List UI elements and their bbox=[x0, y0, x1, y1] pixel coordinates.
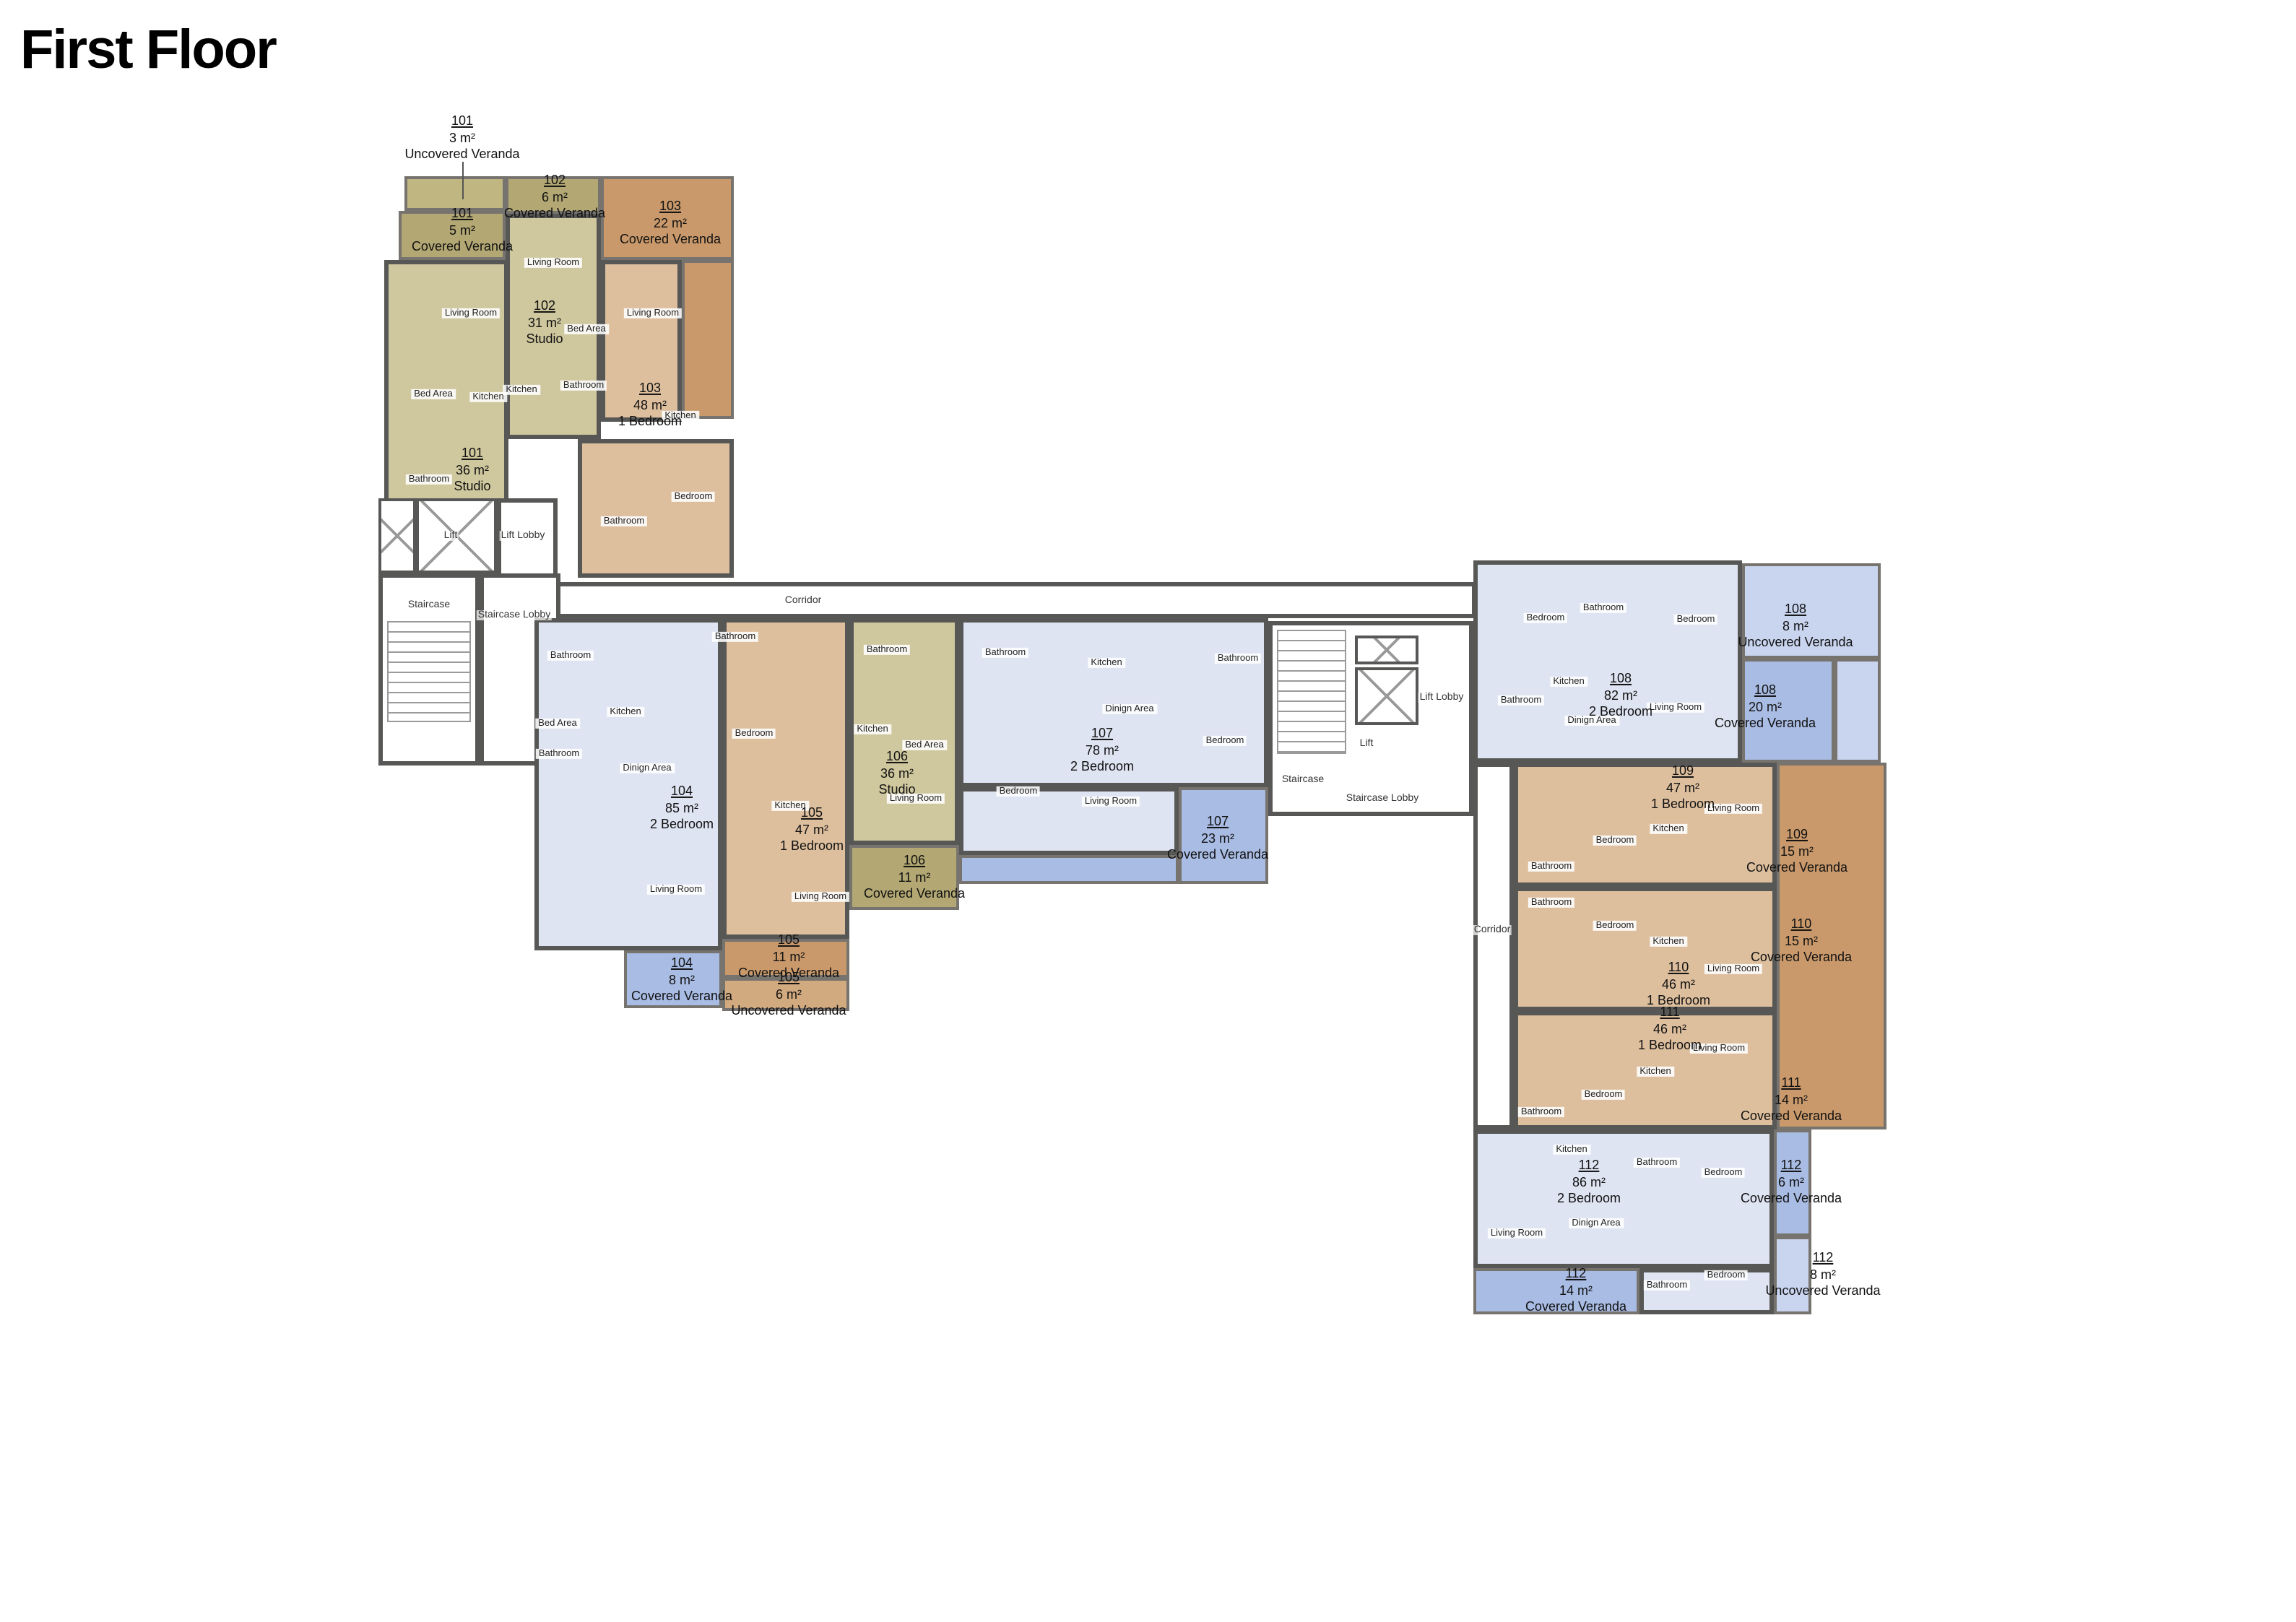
unit-type: 2 Bedroom bbox=[1589, 705, 1652, 721]
unit-103-interior-lower bbox=[578, 439, 734, 578]
room-label-bathroom: Bathroom bbox=[560, 381, 607, 391]
unit-number: 111 bbox=[1638, 1005, 1702, 1021]
unit-area: 86 m² bbox=[1557, 1174, 1621, 1191]
unit-area: 6 m² bbox=[1741, 1174, 1842, 1191]
unit-type: Uncovered Veranda bbox=[1765, 1284, 1880, 1301]
room-label-bathroom: Bathroom bbox=[712, 632, 758, 642]
unit-101-cv-label: 101 5 m² Covered Veranda bbox=[412, 206, 513, 256]
unit-number: 108 bbox=[1738, 602, 1853, 618]
room-label-bathroom: Bathroom bbox=[1580, 603, 1626, 613]
unit-number: 107 bbox=[1167, 814, 1268, 830]
staircase-lobby-label: Staircase Lobby bbox=[1345, 794, 1420, 804]
unit-type: Uncovered Veranda bbox=[404, 147, 519, 164]
unit-number: 103 bbox=[620, 199, 721, 215]
room-label-bedroom: Bedroom bbox=[672, 492, 716, 502]
unit-number: 102 bbox=[504, 173, 605, 189]
unit-type: Studio bbox=[878, 783, 915, 799]
unit-type: Studio bbox=[526, 332, 563, 349]
unit-number: 106 bbox=[864, 853, 965, 869]
unit-104-label: 104 85 m² 2 Bedroom bbox=[650, 784, 714, 834]
unit-111-label: 111 46 m² 1 Bedroom bbox=[1638, 1005, 1702, 1055]
unit-area: 36 m² bbox=[878, 766, 915, 782]
corridor-horizontal bbox=[556, 582, 1476, 618]
unit-107-label: 107 78 m² 2 Bedroom bbox=[1070, 726, 1134, 776]
unit-type: Covered Veranda bbox=[1167, 848, 1268, 864]
room-label-bedroom: Bedroom bbox=[1674, 615, 1718, 625]
corridor-label: Corridor bbox=[784, 596, 823, 606]
room-label-bed-area: Bed Area bbox=[564, 324, 609, 334]
room-label-living-room: Living Room bbox=[1488, 1228, 1546, 1239]
unit-108-uv-label: 108 8 m² Uncovered Veranda bbox=[1738, 602, 1853, 652]
unit-area: 14 m² bbox=[1741, 1092, 1842, 1109]
room-label-bed-area: Bed Area bbox=[411, 389, 456, 399]
unit-area: 11 m² bbox=[738, 949, 839, 966]
unit-type: Covered Veranda bbox=[1741, 1109, 1842, 1126]
room-label-kitchen: Kitchen bbox=[607, 707, 644, 717]
unit-109-label: 109 47 m² 1 Bedroom bbox=[1651, 763, 1715, 814]
room-label-living-room: Living Room bbox=[624, 308, 682, 318]
room-label-bathroom: Bathroom bbox=[536, 749, 582, 759]
unit-112-cv-south-label: 112 14 m² Covered Veranda bbox=[1525, 1266, 1626, 1317]
unit-area: 6 m² bbox=[504, 189, 605, 206]
unit-108-cv-label: 108 20 m² Covered Veranda bbox=[1715, 682, 1816, 733]
room-label-dining-area: Dinign Area bbox=[620, 763, 674, 773]
unit-number: 107 bbox=[1070, 726, 1134, 742]
unit-107-cv-label: 107 23 m² Covered Veranda bbox=[1167, 814, 1268, 864]
unit-107-veranda-strip bbox=[959, 855, 1179, 884]
room-label-living-room: Living Room bbox=[524, 258, 582, 268]
unit-102-cv-label: 102 6 m² Covered Veranda bbox=[504, 173, 605, 223]
room-label-bathroom: Bathroom bbox=[1518, 1107, 1564, 1117]
unit-area: 23 m² bbox=[1167, 830, 1268, 847]
staircase-pattern bbox=[387, 621, 471, 722]
unit-112-label: 112 86 m² 2 Bedroom bbox=[1557, 1158, 1621, 1208]
unit-number: 112 bbox=[1525, 1266, 1626, 1283]
room-label-bathroom: Bathroom bbox=[601, 516, 647, 526]
room-label-bathroom: Bathroom bbox=[864, 645, 910, 655]
unit-110-cv-label: 110 15 m² Covered Veranda bbox=[1751, 916, 1852, 967]
unit-area: 36 m² bbox=[454, 462, 490, 479]
room-label-bedroom: Bedroom bbox=[732, 729, 776, 739]
unit-number: 101 bbox=[454, 446, 490, 462]
room-label-bedroom: Bedroom bbox=[1593, 836, 1637, 846]
unit-number: 112 bbox=[1557, 1158, 1621, 1174]
unit-area: 47 m² bbox=[780, 822, 844, 838]
room-label-kitchen: Kitchen bbox=[1553, 1145, 1590, 1155]
unit-number: 104 bbox=[631, 955, 732, 972]
unit-area: 8 m² bbox=[1738, 618, 1853, 635]
unit-area: 47 m² bbox=[1651, 780, 1715, 797]
unit-type: Covered Veranda bbox=[864, 887, 965, 903]
room-label-bedroom: Bedroom bbox=[1203, 736, 1247, 746]
unit-type: 2 Bedroom bbox=[1557, 1192, 1621, 1208]
corridor-label: Corridor bbox=[1473, 925, 1512, 935]
unit-area: 85 m² bbox=[650, 800, 714, 817]
unit-type: Covered Veranda bbox=[631, 989, 732, 1006]
unit-area: 14 m² bbox=[1525, 1283, 1626, 1299]
room-label-living-room: Living Room bbox=[647, 885, 705, 895]
room-label-living-room: Living Room bbox=[442, 308, 500, 318]
unit-type: Covered Veranda bbox=[620, 233, 721, 249]
lift-icon bbox=[1355, 667, 1418, 725]
room-label-bathroom: Bathroom bbox=[982, 648, 1028, 658]
room-label-kitchen: Kitchen bbox=[1550, 677, 1587, 687]
unit-type: Covered Veranda bbox=[1715, 716, 1816, 733]
room-label-kitchen: Kitchen bbox=[854, 724, 891, 734]
unit-105-uv-label: 105 6 m² Uncovered Veranda bbox=[731, 970, 846, 1020]
room-label-living-room: Living Room bbox=[1647, 703, 1704, 713]
room-label-dining-area: Dinign Area bbox=[1102, 704, 1156, 714]
room-label-bathroom: Bathroom bbox=[1644, 1280, 1690, 1291]
unit-number: 111 bbox=[1741, 1075, 1842, 1092]
unit-area: 31 m² bbox=[526, 315, 563, 331]
unit-type: Covered Veranda bbox=[1746, 861, 1847, 877]
room-label-bathroom: Bathroom bbox=[1215, 654, 1261, 664]
lift-shaft-icon bbox=[378, 498, 416, 573]
unit-number: 112 bbox=[1765, 1250, 1880, 1267]
unit-type: 1 Bedroom bbox=[1651, 797, 1715, 814]
unit-111-cv-label: 111 14 m² Covered Veranda bbox=[1741, 1075, 1842, 1126]
unit-type: 1 Bedroom bbox=[618, 415, 682, 431]
unit-103-covered-veranda-side bbox=[682, 260, 734, 419]
unit-type: Studio bbox=[454, 480, 490, 496]
room-label-bathroom: Bathroom bbox=[1528, 862, 1574, 872]
unit-area: 8 m² bbox=[1765, 1267, 1880, 1283]
unit-area: 15 m² bbox=[1751, 933, 1852, 950]
unit-102-label: 102 31 m² Studio bbox=[526, 298, 563, 349]
room-label-kitchen: Kitchen bbox=[1650, 937, 1686, 947]
unit-number: 105 bbox=[780, 805, 844, 822]
room-label-kitchen: Kitchen bbox=[503, 385, 540, 395]
room-label-kitchen: Kitchen bbox=[1088, 658, 1125, 668]
room-label-bedroom: Bedroom bbox=[1702, 1168, 1746, 1178]
unit-106-label: 106 36 m² Studio bbox=[878, 749, 915, 799]
room-label-bedroom: Bedroom bbox=[1593, 921, 1637, 931]
unit-area: 8 m² bbox=[631, 972, 732, 989]
unit-area: 22 m² bbox=[620, 215, 721, 232]
lift-lobby-label: Lift Lobby bbox=[1418, 693, 1465, 703]
unit-number: 108 bbox=[1715, 682, 1816, 699]
unit-area: 46 m² bbox=[1647, 976, 1710, 993]
unit-106-cv-label: 106 11 m² Covered Veranda bbox=[864, 853, 965, 903]
unit-103-label: 103 48 m² 1 Bedroom bbox=[618, 381, 682, 431]
unit-number: 108 bbox=[1589, 671, 1652, 688]
room-label-kitchen: Kitchen bbox=[469, 392, 506, 402]
unit-area: 48 m² bbox=[618, 397, 682, 414]
unit-number: 109 bbox=[1746, 827, 1847, 843]
room-label-kitchen: Kitchen bbox=[1650, 824, 1686, 834]
unit-area: 82 m² bbox=[1589, 688, 1652, 704]
room-label-bathroom: Bathroom bbox=[547, 651, 594, 661]
lift-lobby-label: Lift Lobby bbox=[500, 531, 547, 541]
page-title: First Floor bbox=[20, 20, 276, 82]
room-label-bedroom: Bedroom bbox=[1524, 613, 1568, 623]
unit-type: 1 Bedroom bbox=[1638, 1038, 1702, 1055]
corridor-vertical bbox=[1473, 763, 1514, 1129]
unit-type: 2 Bedroom bbox=[1070, 760, 1134, 776]
unit-area: 6 m² bbox=[731, 986, 846, 1003]
unit-107-interior-lower bbox=[959, 787, 1179, 855]
unit-103-cv-label: 103 22 m² Covered Veranda bbox=[620, 199, 721, 249]
room-label-bedroom: Bedroom bbox=[997, 786, 1041, 797]
staircase-lobby-label: Staircase Lobby bbox=[477, 610, 552, 620]
unit-112-uv-label: 112 8 m² Uncovered Veranda bbox=[1765, 1250, 1880, 1301]
unit-type: Covered Veranda bbox=[1751, 950, 1852, 967]
unit-type: 1 Bedroom bbox=[780, 839, 844, 856]
unit-area: 11 m² bbox=[864, 869, 965, 886]
unit-number: 110 bbox=[1751, 916, 1852, 933]
unit-101-uv-label: 101 3 m² Uncovered Veranda bbox=[404, 113, 519, 164]
unit-type: Covered Veranda bbox=[504, 207, 605, 223]
unit-type: Covered Veranda bbox=[1525, 1300, 1626, 1317]
unit-area: 78 m² bbox=[1070, 742, 1134, 759]
unit-108-interior bbox=[1473, 560, 1742, 763]
unit-number: 112 bbox=[1741, 1158, 1842, 1174]
room-label-bathroom: Bathroom bbox=[1634, 1158, 1680, 1168]
unit-number: 104 bbox=[650, 784, 714, 800]
unit-type: Uncovered Veranda bbox=[1738, 636, 1853, 652]
unit-105-interior bbox=[722, 618, 849, 939]
unit-101-label: 101 36 m² Studio bbox=[454, 446, 490, 496]
unit-number: 103 bbox=[618, 381, 682, 397]
room-label-kitchen: Kitchen bbox=[1637, 1067, 1673, 1077]
floor-plan: First Floor 101 3 m² U bbox=[0, 0, 2296, 1622]
unit-area: 20 m² bbox=[1715, 699, 1816, 716]
unit-type: Uncovered Veranda bbox=[731, 1004, 846, 1020]
leader-line bbox=[462, 162, 464, 199]
staircase-label: Staircase bbox=[407, 600, 451, 610]
unit-number: 101 bbox=[404, 113, 519, 130]
room-label-bed-area: Bed Area bbox=[535, 719, 580, 729]
unit-number: 109 bbox=[1651, 763, 1715, 780]
unit-area: 5 m² bbox=[412, 222, 513, 239]
room-label-living-room: Living Room bbox=[792, 892, 849, 902]
unit-number: 105 bbox=[738, 932, 839, 949]
unit-number: 106 bbox=[878, 749, 915, 766]
unit-110-label: 110 46 m² 1 Bedroom bbox=[1647, 960, 1710, 1010]
unit-108-label: 108 82 m² 2 Bedroom bbox=[1589, 671, 1652, 721]
unit-112-interior bbox=[1473, 1129, 1774, 1268]
unit-type: 2 Bedroom bbox=[650, 817, 714, 834]
room-label-bathroom: Bathroom bbox=[406, 474, 452, 485]
unit-type: Covered Veranda bbox=[412, 240, 513, 256]
unit-108-veranda-edge bbox=[1834, 659, 1881, 763]
room-label-bedroom: Bedroom bbox=[1704, 1270, 1749, 1280]
unit-number: 110 bbox=[1647, 960, 1710, 976]
unit-area: 46 m² bbox=[1638, 1021, 1702, 1038]
unit-105-label: 105 47 m² 1 Bedroom bbox=[780, 805, 844, 856]
staircase-label: Staircase bbox=[1281, 775, 1325, 785]
unit-number: 105 bbox=[731, 970, 846, 986]
room-label-bathroom: Bathroom bbox=[1498, 695, 1544, 706]
room-label-living-room: Living Room bbox=[1082, 797, 1140, 807]
unit-type: Covered Veranda bbox=[1741, 1192, 1842, 1208]
unit-112-cv-east-label: 112 6 m² Covered Veranda bbox=[1741, 1158, 1842, 1208]
unit-number: 102 bbox=[526, 298, 563, 315]
staircase-pattern bbox=[1277, 630, 1346, 754]
room-label-bathroom: Bathroom bbox=[1528, 898, 1574, 908]
room-label-dining-area: Dinign Area bbox=[1569, 1218, 1623, 1228]
unit-104-cv-label: 104 8 m² Covered Veranda bbox=[631, 955, 732, 1006]
lift-label: Lift bbox=[443, 531, 459, 541]
lift-label: Lift bbox=[1359, 739, 1375, 749]
unit-area: 15 m² bbox=[1746, 843, 1847, 860]
unit-area: 3 m² bbox=[404, 130, 519, 147]
unit-number: 101 bbox=[412, 206, 513, 222]
room-label-bedroom: Bedroom bbox=[1582, 1090, 1626, 1100]
unit-109-cv-label: 109 15 m² Covered Veranda bbox=[1746, 827, 1847, 877]
lift-shaft-icon bbox=[1355, 636, 1418, 664]
